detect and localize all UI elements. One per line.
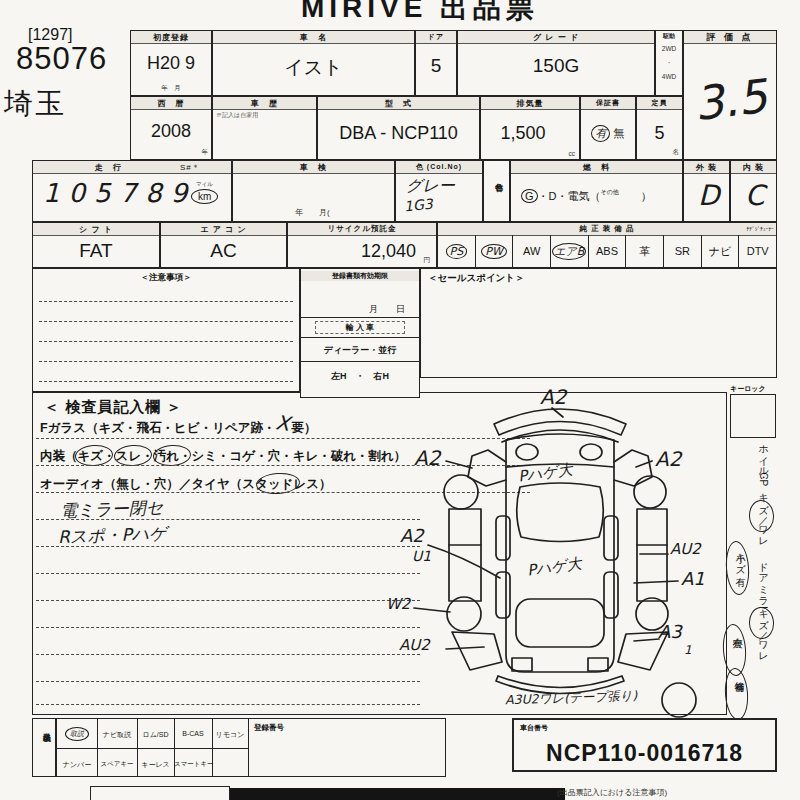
history-cell: 車 歴 ※記入は自家用: [212, 96, 317, 160]
steering-label: 左H ・ 右H: [301, 370, 419, 383]
damage-right-mirror: A2: [655, 447, 681, 471]
forward-items-label-cell: 後送品: [32, 718, 56, 777]
page-title: MIRIVE 出品票: [250, 0, 590, 27]
color-value: グレー: [406, 176, 455, 197]
year-label: 西 暦: [131, 97, 211, 110]
shift-cell: シ フ ト FAT: [32, 222, 160, 268]
car-right-sill: [637, 509, 667, 601]
mileage-cell: 走 行 S#＊ 105789 マイル km: [32, 160, 232, 222]
drive-4wd: 4WD: [656, 73, 682, 80]
fuel-gasoline-circled: G: [521, 189, 538, 203]
aircon-value: AC: [161, 240, 286, 262]
manual-cell: 取説: [57, 727, 97, 741]
damage-right-door: AU2: [670, 540, 701, 558]
equip-navi: ナビ: [701, 235, 739, 267]
equipment-label: 純 正 装 備 品: [580, 224, 635, 234]
year-unit: 年: [202, 148, 209, 157]
chassis-number-box: 車台番号 NCP110-0016718: [512, 718, 777, 772]
capacity-cell: 定員 5 名: [636, 96, 683, 160]
displacement-cell: 排気量 1,500 cc: [480, 96, 580, 160]
fuel-label: 燃 料: [511, 161, 682, 174]
damage-right-rear-door: A1: [681, 568, 705, 589]
car-front-bumper: [494, 409, 626, 435]
sidebar-repair-circle: [723, 667, 750, 720]
mileage-km-circled: km: [191, 189, 218, 204]
damage-left-mirror: A2: [414, 446, 440, 470]
aircon-cell: エ ア コ ン AC: [160, 222, 287, 268]
damage-leader-lines: [414, 408, 678, 649]
damage-left-fender: A2: [400, 525, 424, 546]
equipment-row: PS PW AW エアB ABS 革 SR ナビ DTV: [438, 235, 776, 267]
rom-sd-cell: ロム/SD: [137, 730, 174, 740]
sidebar-wheel-kizu-circle: [748, 499, 775, 533]
equip-abs: ABS: [588, 235, 626, 267]
damage-right-quarter: A3: [658, 621, 682, 642]
recycle-fee-label: リサイクル預託金: [288, 223, 436, 236]
color-cell: 色 (Col.No) グレー 1G3: [395, 160, 483, 222]
interior-grade-cell: 内 装 C: [730, 160, 777, 222]
door-value: 5: [416, 55, 456, 77]
history-note: ※記入は自家用: [216, 111, 258, 120]
recycle-fee-unit: 円: [424, 256, 431, 265]
spare-key-cell: スペアキー: [97, 760, 137, 769]
door-cell: ドア 5: [415, 30, 457, 96]
shift-value: FAT: [33, 240, 159, 262]
keylock-box: [730, 394, 776, 438]
capacity-label: 定員: [637, 97, 682, 110]
bcas-cell: B-CAS: [174, 730, 212, 737]
record-book-label: 保証書: [581, 97, 635, 110]
first-registration-unit: 年 月: [131, 84, 211, 93]
registration-number-label: 登録番号: [254, 723, 284, 733]
car-right-taillight: [588, 658, 608, 671]
equip-ps: PS: [438, 235, 475, 267]
shaken-cell: 車 検 年 月(: [232, 160, 395, 222]
footer-note: (出品票記入における注意事項): [557, 787, 667, 798]
drive-label: 駆動: [656, 32, 682, 41]
fuel-options: ・D・電気（: [538, 190, 601, 202]
score-label: 評 価 点: [684, 31, 776, 44]
auction-sheet: MIRIVE 出品票 [1297] 85076 埼玉 初度登録 H20 9 年 …: [0, 0, 800, 800]
chassis-number-label: 車台番号: [520, 723, 548, 733]
capacity-unit: 名: [673, 148, 680, 157]
first-registration-value: H20 9: [131, 53, 211, 74]
chassis-number-value: NCP110-0016718: [514, 740, 775, 767]
import-label: 輸 入 車: [315, 321, 405, 334]
color-label: 色 (Col.No): [396, 161, 482, 174]
year-value: 2008: [131, 121, 211, 142]
record-no: 無: [614, 127, 625, 139]
first-registration-cell: 初度登録 H20 9 年 月: [130, 30, 212, 96]
exterior-grade-label: 外 装: [684, 161, 729, 174]
mileage-s-label: S#＊: [180, 162, 201, 173]
equip-dtv: DTV: [738, 235, 776, 267]
fuel-cell: 燃 料 G・D・電気（その他 ）: [510, 160, 683, 222]
car-right-headlight: [580, 444, 602, 460]
lot-number: 85076: [16, 41, 107, 77]
fuel-other-label: その他: [601, 189, 619, 195]
recycle-fee-value: 12,040: [361, 241, 416, 262]
grade-cell: グ レ ー ド 150G: [457, 30, 655, 96]
car-right-mirror: [614, 450, 652, 486]
grade-label: グ レ ー ド: [458, 31, 654, 44]
mileage-label: 走 行: [95, 162, 122, 173]
remote-cell: リモコン: [212, 730, 248, 740]
damage-right-quarter-sub: 1: [684, 643, 692, 657]
sales-point-label: ＜セールスポイント＞: [428, 272, 525, 285]
equip-pw: PW: [475, 235, 513, 267]
car-left-headlight: [516, 444, 538, 460]
footer-black-bar: [230, 788, 565, 800]
sidebar-mirror-kizu-circle: [748, 606, 775, 640]
recycle-fee-cell: リサイクル預託金 12,040 円: [287, 222, 437, 268]
equip-airbag: エアB: [550, 235, 588, 267]
color-code-value: 1G3: [403, 196, 433, 215]
keylock-label: キーロック: [730, 384, 766, 394]
displacement-value: 1,500: [481, 123, 565, 144]
drive-2wd: 2WD: [656, 45, 682, 52]
prefecture: 埼玉: [4, 84, 66, 124]
first-registration-label: 初度登録: [131, 31, 211, 44]
car-name-value: イスト: [213, 55, 414, 81]
capacity-value: 5: [637, 123, 682, 144]
car-left-quarter: [452, 632, 502, 670]
model-code-label: 型 式: [318, 97, 479, 110]
inspector-note-2: Rスポ・Pハゲ: [58, 522, 167, 549]
score-cell: 評 価 点 3.5: [683, 30, 777, 160]
car-rear-window: [516, 599, 604, 647]
car-left-front-wheel: [444, 475, 478, 509]
hand-circle-mark: [662, 683, 696, 717]
year-cell: 西 暦 2008 年: [130, 96, 212, 160]
shaken-unit: 年 月(: [295, 207, 330, 218]
car-windshield: [517, 483, 604, 542]
equipment-cell: 純 正 装 備 品 ﾁﾃﾞｼﾞﾁｭｰﾅｰ PS PW AW エアB ABS 革 …: [437, 222, 777, 268]
grade-value: 150G: [458, 55, 654, 77]
validity-unit: 月 日: [369, 303, 405, 316]
fuel-close: ）: [619, 190, 652, 202]
shaken-label: 車 検: [233, 161, 394, 174]
validity-label: 登録書類有効期限: [301, 271, 419, 281]
exterior-grade-value: D: [698, 179, 720, 212]
damage-left-quarter: AU2: [399, 636, 430, 654]
interior-grade-label: 内 装: [731, 161, 776, 174]
forward-items-table: 取説 ナビ取説 ロム/SD B-CAS リモコン ナンバー スペアキー キーレス…: [56, 718, 446, 777]
equip-sr: SR: [663, 235, 701, 267]
mileage-mile-label: マイル: [196, 181, 213, 188]
caution-label: ＜注意事項＞: [33, 272, 299, 284]
drive-dot: ・: [656, 59, 682, 68]
car-left-taillight: [512, 658, 532, 671]
inspector-note-1: 電ミラー閉セ: [60, 496, 164, 523]
aircon-label: エ ア コ ン: [161, 223, 286, 236]
car-left-rear-wheel: [447, 597, 481, 631]
smart-key-cell: スマートキー: [174, 760, 212, 769]
record-book-cell: 保証書 有 無: [580, 96, 636, 160]
door-label: ドア: [416, 31, 456, 44]
displacement-unit: cc: [569, 150, 576, 157]
color-change-cell: 色替: [483, 160, 510, 222]
equip-leather: 革: [625, 235, 663, 267]
footer-partial-box: [90, 786, 230, 800]
sales-point-box: ＜セールスポイント＞: [420, 268, 777, 378]
model-code-value: DBA - NCP110: [318, 123, 479, 144]
drive-cell: 駆動 2WD ・ 4WD: [655, 30, 683, 96]
exterior-grade-cell: 外 装 D: [683, 160, 730, 222]
damage-left-rear-wheel: W2: [386, 595, 410, 613]
mileage-value: 105789: [43, 178, 196, 208]
car-right-front-wheel: [634, 476, 666, 508]
glass-x-mark: X: [274, 410, 291, 436]
model-code-cell: 型 式 DBA - NCP110: [317, 96, 480, 160]
damage-front-bumper: A2: [540, 385, 566, 409]
damage-left-fender-u1: U1: [412, 548, 431, 564]
car-name-label: 車 名: [213, 31, 414, 44]
score-value: 3.5: [691, 69, 770, 132]
keyless-cell: キーレス: [137, 760, 174, 770]
car-name-cell: 車 名 イスト: [212, 30, 415, 96]
number-plate-cell: ナンバー: [57, 760, 97, 770]
equip-aw: AW: [512, 235, 550, 267]
digital-tuner-label: ﾁﾃﾞｼﾞﾁｭｰﾅｰ: [747, 226, 775, 232]
displacement-label: 排気量: [481, 97, 579, 110]
validity-box: 登録書類有効期限 月 日 輸 入 車 ディーラー・並行 左H ・ 右H: [300, 268, 420, 398]
navi-manual-cell: ナビ取説: [97, 730, 137, 740]
history-label: 車 歴: [213, 97, 316, 110]
shift-label: シ フ ト: [33, 223, 159, 236]
inspector-title: ＜ 検査員記入欄 ＞: [44, 398, 182, 417]
caution-box: ＜注意事項＞: [32, 268, 300, 392]
interior-grade-value: C: [745, 179, 765, 212]
record-yes-circled: 有: [591, 125, 610, 142]
dealer-parallel-label: ディーラー・並行: [301, 344, 419, 357]
